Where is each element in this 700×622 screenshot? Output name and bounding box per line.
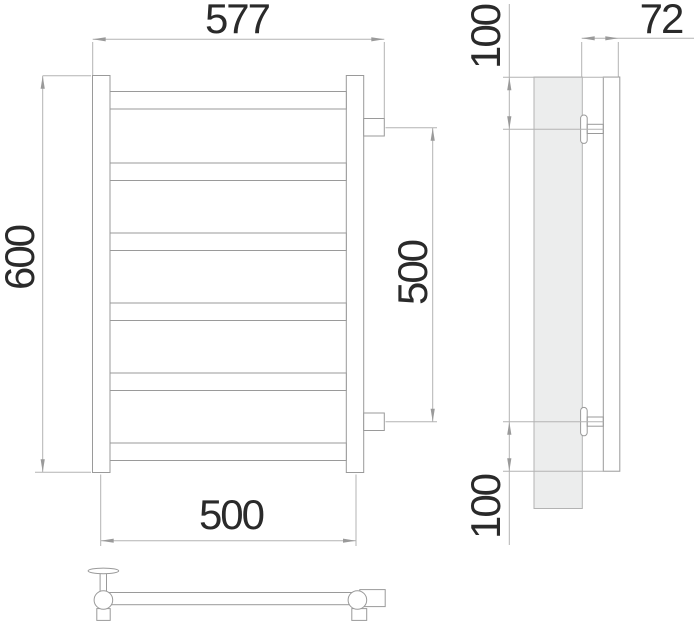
rail-bar [110, 233, 346, 251]
arrowhead [343, 539, 356, 543]
overall-width-label: 577 [205, 0, 270, 42]
left-post [93, 76, 111, 473]
side-view [534, 77, 620, 509]
dim-connection-spacing: 500 [386, 128, 438, 422]
wall-plate [534, 77, 582, 509]
dim-rail-center-width: 500 [101, 475, 356, 547]
connection-spacing-label: 500 [389, 240, 436, 305]
right-post [346, 76, 363, 473]
dim-wall-depth: 72 [582, 0, 694, 77]
overall-height-label: 600 [0, 225, 43, 290]
dim-overall-height: 600 [0, 76, 91, 473]
arrowhead [507, 422, 511, 435]
arrowhead [507, 458, 511, 471]
valve-handle [88, 568, 119, 574]
arrowhead [507, 77, 511, 90]
rail-bar [110, 92, 346, 110]
right-post-top [348, 591, 367, 610]
arrowhead [431, 128, 435, 141]
arrowhead [41, 459, 45, 472]
right-mount-base [352, 609, 367, 621]
front-view [93, 76, 385, 473]
towel-rail-drawing: 577 600 500 500 [0, 0, 700, 622]
arrowhead [605, 36, 618, 40]
top-view [88, 568, 385, 620]
arrowhead [41, 76, 45, 89]
rail-bar [110, 443, 346, 461]
arrowhead [507, 116, 511, 129]
rail-bar [110, 303, 346, 321]
arrowhead [371, 37, 384, 41]
arrowhead [431, 409, 435, 422]
left-post-top [94, 591, 113, 610]
top-connection-stub [364, 119, 385, 137]
rail-tube [107, 593, 355, 605]
arrowhead [93, 37, 106, 41]
bottom-connection-stub [364, 413, 385, 431]
rail-center-width-label: 500 [199, 491, 264, 538]
valve-stem [100, 574, 106, 593]
rail-bar [110, 163, 346, 181]
wall-depth-label: 72 [640, 0, 683, 42]
bottom-offset-label: 100 [462, 474, 509, 539]
technical-drawing: 577 600 500 500 [0, 0, 700, 622]
top-offset-label: 100 [462, 4, 509, 69]
rail-bar [110, 373, 346, 391]
left-mount-base [97, 609, 110, 621]
arrowhead [101, 539, 114, 543]
side-post [603, 77, 620, 471]
arrowhead [582, 36, 595, 40]
